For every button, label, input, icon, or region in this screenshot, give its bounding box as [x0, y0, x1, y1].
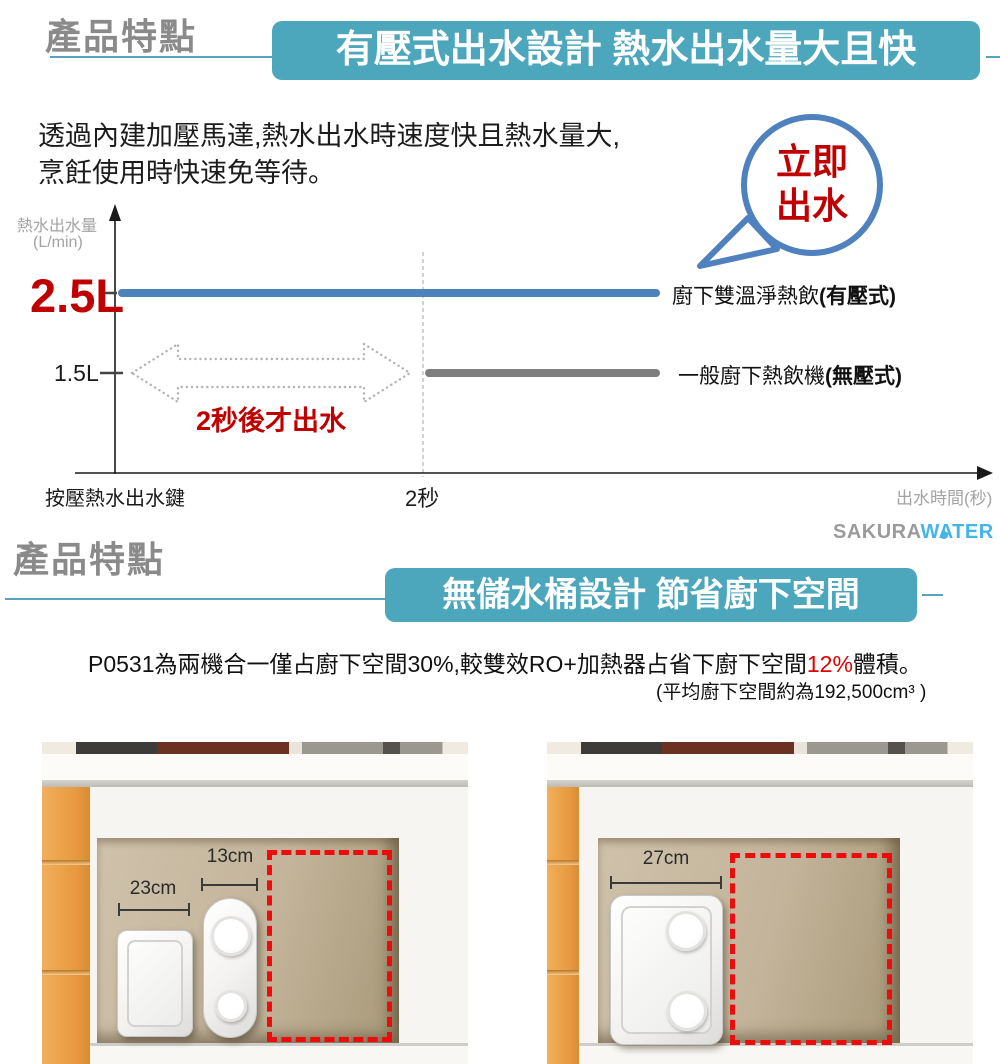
countertop-edge: [547, 780, 973, 787]
left-cabinet-photo: 13cm 23cm: [42, 742, 468, 1064]
dim-line-27cm: [610, 882, 722, 884]
ro-unit-panel: [127, 940, 183, 1027]
drawer-gap: [547, 970, 579, 975]
para-text-2: 體積。: [853, 651, 922, 677]
regular-series-line: [425, 369, 660, 377]
countertop-items-strip: [547, 742, 973, 754]
delay-annotation: 2秒後才出水: [196, 399, 346, 438]
y-axis-label-line1: 熱水出水量: [17, 212, 97, 236]
cabinet-floor: [579, 1043, 973, 1064]
x-origin-label: 按壓熱水出水鍵: [45, 482, 185, 511]
legend2-type: (無壓式): [825, 365, 902, 388]
combined-unit: [610, 895, 723, 1045]
legend1-name: 廚下雙溫淨熱飲: [672, 285, 819, 308]
section1-banner: 有壓式出水設計 熱水出水量大且快: [272, 21, 980, 80]
x-axis-arrowhead: [977, 466, 993, 480]
free-space-dashed-rect: [730, 853, 892, 1045]
bubble-line1: 立即: [742, 140, 882, 184]
orange-drawer-column: [42, 787, 90, 1064]
drawer-gap: [547, 860, 579, 865]
faucet-unit: [203, 898, 257, 1038]
faucet-unit-bottom-circle: [215, 990, 247, 1022]
combined-unit-top-circle: [666, 911, 706, 951]
legend2-name: 一般廚下熱飲機: [678, 365, 825, 388]
y-tick-1-5L: 1.5L: [54, 360, 99, 387]
para-percent-red: 12%: [807, 651, 853, 677]
space-saving-paragraph: P0531為兩機合一僅占廚下空間30%,較雙效RO+加熱器占省下廚下空間12%體…: [88, 645, 922, 679]
legend-pressurized: 廚下雙溫淨熱飲(有壓式): [672, 280, 896, 310]
drawer-gap: [42, 970, 90, 975]
countertop: [42, 754, 468, 780]
delay-double-arrow-icon: [132, 344, 410, 402]
legend-regular: 一般廚下熱飲機(無壓式): [678, 360, 902, 390]
section1-title: 產品特點: [45, 8, 197, 60]
x-tick-2s: 2秒: [405, 481, 439, 513]
bubble-text: 立即 出水: [742, 140, 882, 228]
body-line1: 透過內建加壓馬達,熱水出水時速度快且熱水量大,: [38, 118, 620, 155]
section2-banner: 無儲水桶設計 節省廚下空間: [385, 568, 917, 622]
orange-drawer-column: [547, 787, 579, 1064]
y-axis-label-line2: (L/min): [33, 234, 83, 252]
body-line2: 烹飪使用時快速免等待。: [38, 155, 620, 192]
section2-title: 產品特點: [13, 531, 165, 583]
section1-body: 透過內建加壓馬達,熱水出水時速度快且熱水量大, 烹飪使用時快速免等待。: [38, 118, 620, 192]
dim-line-13cm: [201, 884, 258, 886]
combined-unit-bottom-circle: [667, 991, 707, 1031]
logo-water: WATER: [920, 521, 993, 543]
cabinet-floor: [90, 1043, 468, 1064]
dim-label-23cm: 23cm: [124, 878, 182, 900]
faucet-unit-top-circle: [211, 916, 251, 956]
y-axis-arrowhead: [109, 204, 121, 221]
average-space-note: (平均廚下空間約為192,500cm³ ): [656, 677, 926, 704]
para-text-1: P0531為兩機合一僅占廚下空間30%,較雙效RO+加熱器占省下廚下空間: [88, 651, 807, 677]
section1-banner-right-rule: [986, 56, 1000, 58]
y-tick-2-5L: 2.5L: [30, 268, 124, 323]
dim-line-23cm: [118, 909, 190, 911]
x-axis-label: 出水時間(秒): [896, 484, 992, 509]
pressurized-series-line: [118, 289, 660, 297]
ro-unit: [117, 930, 193, 1037]
section2-title-underline: [5, 598, 385, 600]
legend1-type: (有壓式): [819, 285, 896, 308]
right-cabinet-photo: 27cm: [547, 742, 973, 1064]
sakura-water-logo: SAKURAWATER: [833, 521, 994, 544]
countertop-edge: [42, 780, 468, 787]
bubble-line2: 出水: [742, 184, 882, 228]
free-space-dashed-rect: [267, 850, 392, 1042]
drawer-gap: [42, 860, 90, 865]
countertop: [547, 754, 973, 780]
water-drop-icon: [940, 528, 948, 539]
product-feature-page: 產品特點 有壓式出水設計 熱水出水量大且快 透過內建加壓馬達,熱水出水時速度快且…: [0, 0, 1000, 1064]
dim-label-27cm: 27cm: [637, 848, 695, 870]
section2-banner-right-rule: [922, 594, 943, 596]
logo-sakura: SAKURA: [833, 521, 920, 543]
countertop-items-strip: [42, 742, 468, 754]
dim-label-13cm: 13cm: [201, 846, 259, 868]
